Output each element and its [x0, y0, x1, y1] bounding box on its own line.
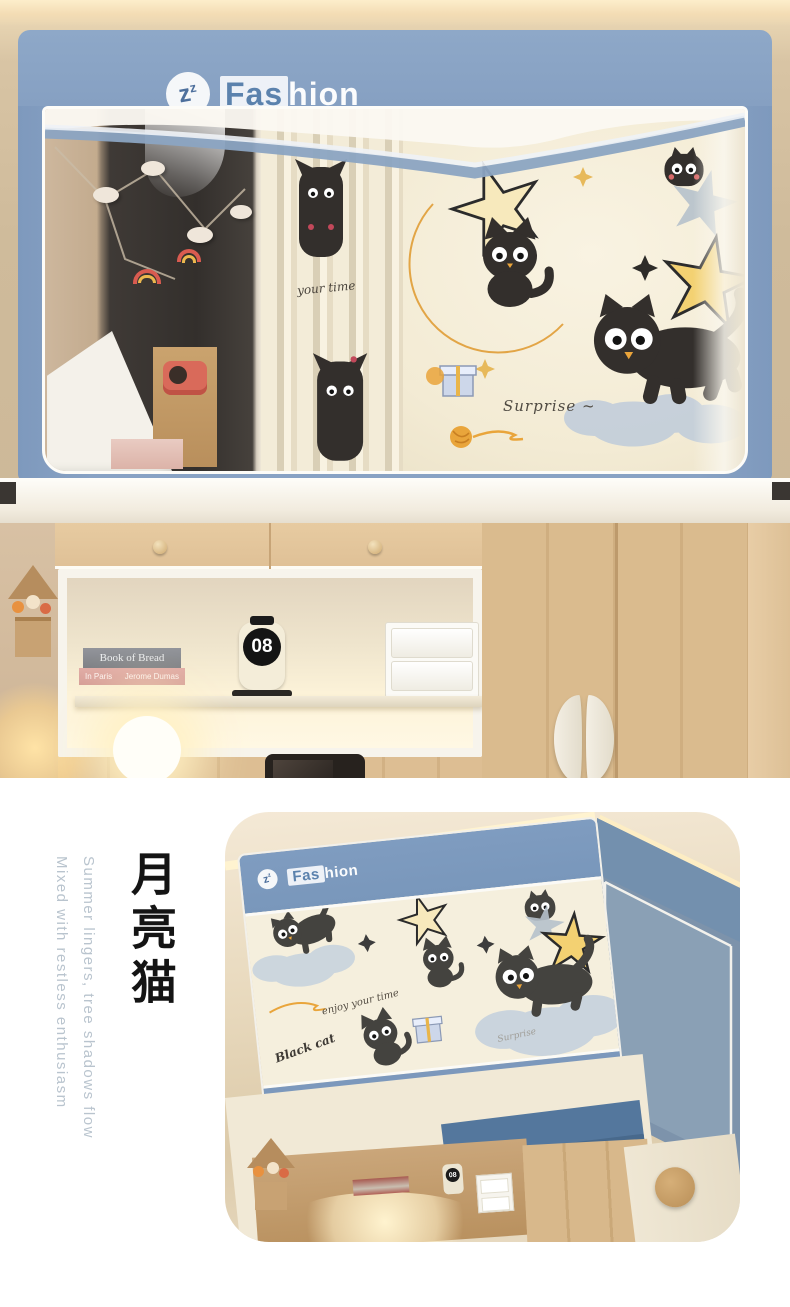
- bottom-product-photo: zz Fashion: [225, 812, 740, 1242]
- wardrobe-handle: [554, 695, 582, 778]
- ceiling-light-glow: [0, 0, 790, 26]
- clock-value: 08: [445, 1168, 460, 1183]
- zz-sleep-icon: zz: [255, 867, 280, 892]
- dorm-furniture: Book of Bread In ParisJerome Dumas 08: [0, 523, 790, 778]
- cabinet-knob: [368, 540, 382, 554]
- caption-subtitle: Summer lingers, tree shadows flow Mixed …: [48, 856, 102, 1139]
- niche-interior: Book of Bread In ParisJerome Dumas 08: [67, 578, 473, 748]
- book-spine: Book of Bread: [83, 648, 181, 668]
- hanging-flower-basket: [8, 565, 58, 661]
- wardrobe-handle: [586, 695, 614, 778]
- canopy-frame: your time: [18, 106, 772, 482]
- bed-frame-board: [0, 478, 790, 523]
- drawer-organizer-small: [476, 1173, 515, 1213]
- top-product-photo: zz Fashion: [0, 0, 790, 778]
- shelf-board: [75, 696, 483, 707]
- book-spine: In ParisJerome Dumas: [79, 668, 185, 685]
- hanging-flower-basket: [243, 1138, 299, 1210]
- peeking-cat-graphic: [305, 351, 371, 466]
- wardrobe: [482, 523, 748, 778]
- upper-cabinet: [55, 523, 482, 569]
- desk-lamp-globe: [113, 716, 181, 778]
- brand-wordmark: Fashion: [287, 861, 359, 885]
- surprise-text: Surprise ~: [503, 397, 596, 415]
- wall-edge-strip: [748, 523, 790, 778]
- cloud-ornament: [230, 205, 252, 219]
- desk-monitor: [265, 754, 365, 778]
- desk-clock-small: 08: [442, 1163, 464, 1194]
- drape-swag: [45, 107, 745, 187]
- caption-line-1: Summer lingers, tree shadows flow: [75, 856, 102, 1139]
- caption-line-2: Mixed with restless enthusiasm: [48, 856, 75, 1139]
- clock-value: 08: [243, 628, 281, 666]
- canopy-valance: zz Fashion: [18, 30, 772, 106]
- shelf-niche: Book of Bread In ParisJerome Dumas 08: [58, 569, 482, 757]
- wood-knob: [653, 1165, 698, 1210]
- cloud-ornament: [93, 187, 119, 203]
- curtain-script-text: your time: [297, 278, 356, 297]
- caption-title: 月亮猫: [118, 850, 184, 1012]
- drawer-organizer: [385, 622, 479, 698]
- frame-notch: [0, 482, 16, 504]
- desk-clock: 08: [235, 616, 289, 698]
- frame-notch: [772, 482, 790, 500]
- brand-logo-small: zz Fashion: [257, 860, 360, 890]
- canopy-panel: your time: [42, 106, 748, 474]
- bed-end-panel: [624, 1134, 740, 1242]
- toy-telephone: [163, 361, 207, 395]
- cloud-ornament: [187, 227, 213, 243]
- toy-books: [111, 439, 183, 469]
- cabinet-knob: [153, 540, 167, 554]
